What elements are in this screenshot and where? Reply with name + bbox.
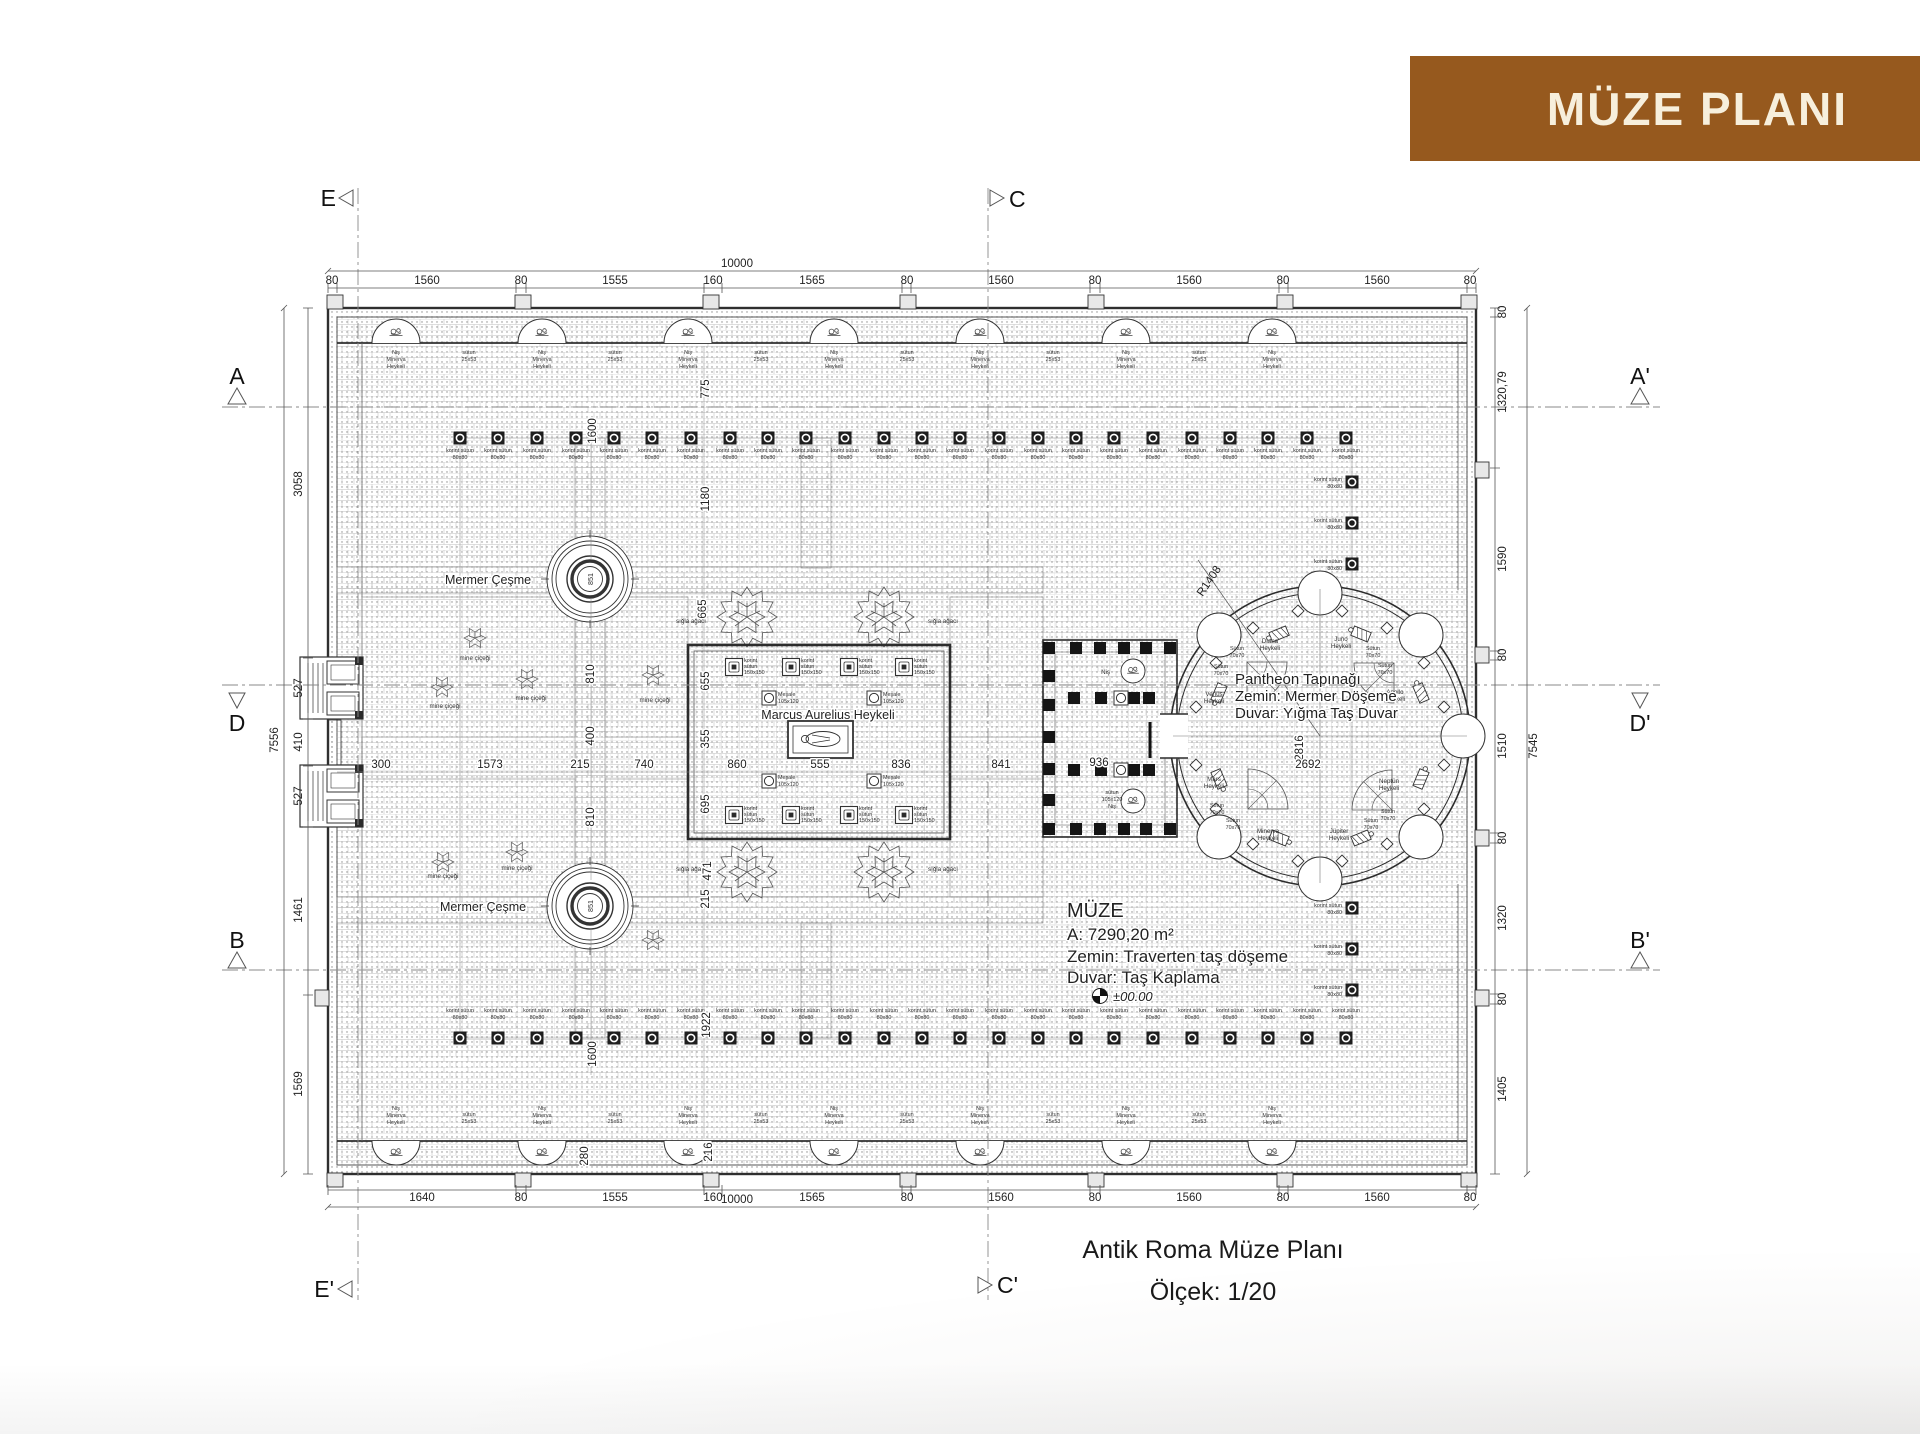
svg-text:1320: 1320 (1497, 905, 1509, 931)
svg-text:1555: 1555 (602, 1192, 628, 1204)
svg-text:215: 215 (570, 759, 589, 771)
svg-text:80: 80 (1497, 832, 1509, 845)
svg-text:80: 80 (1464, 275, 1477, 287)
svg-text:80x80: 80x80 (953, 455, 968, 461)
svg-text:Heykeli: Heykeli (1263, 364, 1281, 370)
svg-text:105x120: 105x120 (883, 782, 904, 788)
svg-text:105x120: 105x120 (778, 699, 799, 705)
korint-sutun-label: korint sütun (985, 448, 1013, 454)
sutun-25x53-label: sütun (608, 1112, 621, 1118)
korint-sutun-label: korint sütun (716, 1008, 744, 1014)
korint-sutun-label: korint sütun (600, 1008, 628, 1014)
svg-text:80x80: 80x80 (838, 1015, 853, 1021)
svg-text:665: 665 (697, 599, 709, 618)
svg-text:Minerva: Minerva (970, 1113, 989, 1119)
svg-text:Heykeli: Heykeli (1263, 1120, 1281, 1126)
svg-text:105x120: 105x120 (883, 699, 904, 705)
korint-sutun-label: korint sütun (1024, 448, 1052, 454)
statue-label: NeptünHeykeli (1379, 778, 1400, 792)
nis-minerva-label: Niş (684, 350, 692, 356)
svg-text:Minerva: Minerva (678, 357, 697, 363)
korint-sutun-label: korint sütun (562, 448, 590, 454)
svg-text:Zemin: Mermer Döşeme: Zemin: Mermer Döşeme (1235, 688, 1397, 705)
korint-sutun-label: korint sütun (1314, 985, 1342, 991)
mine-label: mine çiçeği (428, 873, 459, 880)
svg-text:300: 300 (371, 759, 390, 771)
svg-text:3058: 3058 (293, 471, 305, 497)
svg-text:Minerva: Minerva (532, 1113, 551, 1119)
svg-text:80: 80 (1277, 1192, 1290, 1204)
svg-text:80x80: 80x80 (838, 455, 853, 461)
svg-text:841: 841 (991, 759, 1010, 771)
svg-text:655: 655 (700, 671, 712, 690)
korint-sutun-label: korint sütun (446, 448, 474, 454)
svg-text:215: 215 (700, 889, 712, 908)
korint-sutun-label: korint sütun (1062, 1008, 1090, 1014)
svg-text:Minerva: Minerva (678, 1113, 697, 1119)
svg-text:80x80: 80x80 (1327, 525, 1342, 531)
svg-text:80x80: 80x80 (877, 455, 892, 461)
korint-sutun-label: korint sütun (523, 1008, 551, 1014)
sigla-label: sığla ağacı (928, 618, 958, 625)
svg-text:1590: 1590 (1497, 546, 1509, 572)
svg-text:Heykeli: Heykeli (1204, 783, 1224, 790)
svg-text:80: 80 (901, 1192, 914, 1204)
svg-text:150x150: 150x150 (801, 670, 822, 676)
svg-text:80: 80 (1497, 993, 1509, 1006)
svg-text:Heykeli: Heykeli (1331, 643, 1351, 650)
korint-sutun-label: korint sütun (870, 448, 898, 454)
sutun-25x53-label: sütun (1046, 1112, 1059, 1118)
svg-text:Juno: Juno (1334, 636, 1348, 643)
korint-sutun-label: korint sütun (908, 448, 936, 454)
svg-text:Minerva: Minerva (1262, 1113, 1281, 1119)
marker-C2: C' (997, 1272, 1018, 1298)
korint-sutun-label: korint sütun (484, 1008, 512, 1014)
sutun-25x53-label: sütun (1192, 1112, 1205, 1118)
marker-E2: E' (314, 1276, 334, 1302)
korint-sutun-label: korint sütun (870, 1008, 898, 1014)
svg-text:80x80: 80x80 (453, 1015, 468, 1021)
sutun-25x53-label: sütun (754, 1112, 767, 1118)
svg-text:80: 80 (1464, 1192, 1477, 1204)
marker-A2: A' (1630, 363, 1650, 389)
svg-text:1922: 1922 (701, 1012, 713, 1038)
korint-sutun-label: korint sütun (638, 1008, 666, 1014)
svg-text:80: 80 (1089, 1192, 1102, 1204)
svg-text:80x80: 80x80 (1223, 1015, 1238, 1021)
marcus-label: Marcus Aurelius Heykeli (761, 708, 894, 722)
svg-text:80x80: 80x80 (491, 1015, 506, 1021)
svg-text:Minerva: Minerva (1262, 357, 1281, 363)
svg-text:1573: 1573 (477, 759, 503, 771)
svg-text:216: 216 (703, 1142, 715, 1161)
svg-text:80: 80 (1497, 649, 1509, 662)
svg-text:70x70: 70x70 (1214, 671, 1229, 677)
svg-text:Heykeli: Heykeli (533, 1120, 551, 1126)
sutun-70-label: Sütun (1381, 809, 1395, 815)
svg-text:70x70: 70x70 (1230, 653, 1245, 659)
svg-text:80x80: 80x80 (1223, 455, 1238, 461)
svg-text:Mars: Mars (1207, 776, 1221, 783)
svg-text:80x80: 80x80 (684, 455, 699, 461)
svg-text:Minerva: Minerva (1116, 1113, 1135, 1119)
nis-minerva-label: Niş (976, 350, 984, 356)
svg-text:Minerva: Minerva (970, 357, 989, 363)
svg-text:25x53: 25x53 (462, 357, 477, 363)
svg-text:25x53: 25x53 (900, 357, 915, 363)
korint-sutun-label: korint sütun (985, 1008, 1013, 1014)
svg-text:555: 555 (810, 759, 829, 771)
svg-text:Duvar: Yığma Taş Duvar: Duvar: Yığma Taş Duvar (1235, 705, 1398, 722)
svg-text:80x80: 80x80 (1327, 566, 1342, 572)
marker-A: A (229, 363, 245, 389)
svg-text:Heykeli: Heykeli (533, 364, 551, 370)
sutun-25x53-label: sütun (462, 350, 475, 356)
svg-text:1560: 1560 (1364, 275, 1390, 287)
korint-sutun-label: korint sütun (1100, 1008, 1128, 1014)
korint-sutun-label: korint sütun (562, 1008, 590, 1014)
svg-text:80x80: 80x80 (1327, 992, 1342, 998)
statue-label: VenüsHeykeli (1204, 691, 1224, 705)
nis-minerva-label: Niş (830, 350, 838, 356)
svg-text:Minerva: Minerva (824, 357, 843, 363)
svg-text:1560: 1560 (988, 275, 1014, 287)
statue-label: DianaHeykeli (1260, 638, 1280, 652)
korint-sutun-label: korint sütun (716, 448, 744, 454)
svg-text:Heykeli: Heykeli (679, 1120, 697, 1126)
svg-text:80x80: 80x80 (1327, 951, 1342, 957)
svg-text:80x80: 80x80 (1185, 1015, 1200, 1021)
nis-minerva-label: Niş (538, 1106, 546, 1112)
sigla-label: sığla ağacı (928, 866, 958, 873)
svg-text:1560: 1560 (988, 1192, 1014, 1204)
sutun-25x53-label: sütun (754, 350, 767, 356)
nis-minerva-label: Niş (1268, 350, 1276, 356)
caption-title: Antik Roma Müze Planı (1082, 1236, 1343, 1264)
svg-text:80x80: 80x80 (799, 455, 814, 461)
svg-text:70x70: 70x70 (1381, 816, 1396, 822)
korint-sutun-label: korint sütun (1178, 1008, 1206, 1014)
svg-text:150x150: 150x150 (914, 818, 935, 824)
svg-text:Heykeli: Heykeli (971, 364, 989, 370)
svg-text:105x120: 105x120 (778, 782, 799, 788)
korint-sutun-label: korint sütun (1216, 1008, 1244, 1014)
korint-sutun-label: korint sütun (677, 448, 705, 454)
svg-text:1461: 1461 (293, 897, 305, 923)
svg-text:Diana: Diana (1262, 638, 1279, 645)
marker-C: C (1009, 186, 1026, 212)
nis-minerva-label: Niş (392, 350, 400, 356)
marker-D2: D' (1629, 710, 1650, 736)
svg-text:80x80: 80x80 (953, 1015, 968, 1021)
svg-text:471: 471 (702, 861, 714, 880)
level-value: ±00.00 (1113, 989, 1153, 1004)
svg-text:80x80: 80x80 (1261, 455, 1276, 461)
svg-text:70x70: 70x70 (1366, 653, 1381, 659)
svg-text:80x80: 80x80 (1031, 455, 1046, 461)
svg-text:1640: 1640 (409, 1192, 435, 1204)
sutun-70-label: Sütun (1210, 803, 1224, 809)
svg-text:70x70: 70x70 (1210, 810, 1225, 816)
svg-text:80x80: 80x80 (1031, 1015, 1046, 1021)
svg-text:Heykeli: Heykeli (825, 1120, 843, 1126)
svg-text:80x80: 80x80 (799, 1015, 814, 1021)
svg-text:80x80: 80x80 (877, 1015, 892, 1021)
svg-text:150x150: 150x150 (914, 670, 935, 676)
svg-text:355: 355 (700, 729, 712, 748)
dim-2692: 2692 (1295, 759, 1321, 771)
statue-label: MinervaHeykeli (1257, 828, 1280, 842)
svg-text:Neptün: Neptün (1379, 778, 1400, 785)
svg-text:25x53: 25x53 (754, 357, 769, 363)
svg-text:Heykeli: Heykeli (971, 1120, 989, 1126)
svg-text:Heykeli: Heykeli (1260, 645, 1280, 652)
svg-text:Minerva: Minerva (1116, 357, 1135, 363)
sutun-25x53-label: sütun (1046, 350, 1059, 356)
svg-text:80x80: 80x80 (723, 1015, 738, 1021)
svg-text:527: 527 (293, 678, 305, 697)
svg-text:25x53: 25x53 (1046, 1119, 1061, 1125)
svg-text:1510: 1510 (1497, 733, 1509, 759)
svg-text:80x80: 80x80 (915, 455, 930, 461)
svg-text:80x80: 80x80 (992, 455, 1007, 461)
svg-text:80x80: 80x80 (723, 455, 738, 461)
svg-text:Heykeli: Heykeli (1258, 835, 1278, 842)
svg-text:25x53: 25x53 (462, 1119, 477, 1125)
sutun-25x53-label: sütun (608, 350, 621, 356)
muze-name: MÜZE (1067, 900, 1124, 922)
svg-text:150x150: 150x150 (744, 818, 765, 824)
svg-text:150x150: 150x150 (801, 818, 822, 824)
nis-minerva-label: Niş (830, 1106, 838, 1112)
svg-text:Minerva: Minerva (386, 1113, 405, 1119)
sutun-25x53-label: sütun (900, 1112, 913, 1118)
svg-text:80x80: 80x80 (530, 455, 545, 461)
svg-text:150x150: 150x150 (859, 818, 880, 824)
svg-text:1600: 1600 (587, 1041, 599, 1067)
svg-text:80x80: 80x80 (1107, 1015, 1122, 1021)
svg-text:25x53: 25x53 (1192, 1119, 1207, 1125)
svg-text:860: 860 (727, 759, 746, 771)
svg-text:80x80: 80x80 (607, 455, 622, 461)
svg-text:25x53: 25x53 (1046, 357, 1061, 363)
pantheon-portico: Niş sütun 105x120 Niş (1043, 640, 1177, 837)
korint-sutun-label: korint sütun (1178, 448, 1206, 454)
svg-text:25x53: 25x53 (754, 1119, 769, 1125)
svg-text:70x70: 70x70 (1378, 670, 1393, 676)
svg-text:25x53: 25x53 (1192, 357, 1207, 363)
sutun-25x53-label: sütun (462, 1112, 475, 1118)
nis-minerva-label: Niş (976, 1106, 984, 1112)
svg-text:Heykeli: Heykeli (1117, 1120, 1135, 1126)
svg-text:Heykeli: Heykeli (1379, 785, 1399, 792)
svg-text:70x70: 70x70 (1364, 825, 1379, 831)
korint-sutun-label: korint sütun (1314, 477, 1342, 483)
muze-area: A: 7290,20 m² (1067, 925, 1174, 944)
caption-scale: Ölçek: 1/20 (1150, 1278, 1276, 1306)
svg-text:80: 80 (515, 1192, 528, 1204)
dim-right-total: 7545 (1528, 733, 1540, 759)
statue-plinth (788, 721, 853, 758)
mesale-label: Meşale (883, 775, 900, 781)
mine-label: mine çiçeği (502, 865, 533, 872)
korint-sutun-label: korint sütun (946, 448, 974, 454)
svg-text:80x80: 80x80 (645, 1015, 660, 1021)
svg-text:Heykeli: Heykeli (1117, 364, 1135, 370)
marker-E: E (321, 185, 336, 211)
svg-text:Minerva: Minerva (1257, 828, 1280, 835)
svg-text:836: 836 (891, 759, 910, 771)
svg-text:Heykeli: Heykeli (387, 1120, 405, 1126)
korint-sutun-label: korint sütun (1139, 448, 1167, 454)
korint-sutun-label: korint sütun (908, 1008, 936, 1014)
fountain-dim: 851 (586, 573, 595, 585)
svg-text:25x53: 25x53 (608, 357, 623, 363)
svg-text:1405: 1405 (1497, 1076, 1509, 1102)
statue-label: JüpiterHeykeli (1329, 828, 1349, 842)
korint-sutun-label: korint sütun (754, 448, 782, 454)
svg-text:1180: 1180 (700, 487, 712, 512)
svg-text:80x80: 80x80 (607, 1015, 622, 1021)
sutun-70-label: Sütun (1214, 664, 1228, 670)
svg-text:810: 810 (585, 807, 597, 826)
korint-sutun-label: korint sütun (1332, 448, 1360, 454)
korint-sutun-label: korint sütun (1216, 448, 1244, 454)
svg-text:280: 280 (579, 1146, 591, 1165)
svg-text:80x80: 80x80 (645, 455, 660, 461)
svg-text:80x80: 80x80 (1185, 455, 1200, 461)
svg-text:80x80: 80x80 (1327, 910, 1342, 916)
svg-text:80x80: 80x80 (915, 1015, 930, 1021)
mesale-label: Meşale (778, 692, 795, 698)
korint-sutun-label: korint sütun (831, 1008, 859, 1014)
caption: Antik Roma Müze Planı Ölçek: 1/20 (1082, 1236, 1343, 1306)
sutun-70-label: Sütun (1230, 646, 1244, 652)
page: MÜZE PLANI (0, 0, 1920, 1434)
sutun-70-label: Sütun (1364, 818, 1378, 824)
svg-text:80: 80 (901, 275, 914, 287)
sutun-70-label: Sütun (1366, 646, 1380, 652)
korint-sutun-label: korint sütun (1024, 1008, 1052, 1014)
svg-text:80x80: 80x80 (1107, 455, 1122, 461)
korint-sutun-label: korint sütun (1314, 944, 1342, 950)
svg-text:70x70: 70x70 (1226, 825, 1241, 831)
svg-text:Niş: Niş (1108, 804, 1116, 810)
nis-minerva-label: Niş (1122, 1106, 1130, 1112)
mine-label: mine çiçeği (640, 697, 671, 704)
svg-text:Minerva: Minerva (386, 357, 405, 363)
marker-B2: B' (1630, 927, 1650, 953)
svg-text:80: 80 (326, 275, 339, 287)
korint-sutun-label: korint sütun (523, 448, 551, 454)
korint-sutun-label: korint sütun (1293, 1008, 1321, 1014)
svg-text:1555: 1555 (602, 275, 628, 287)
svg-text:80x80: 80x80 (1300, 1015, 1315, 1021)
svg-text:150x150: 150x150 (744, 670, 765, 676)
sutun-25x53-label: sütun (1192, 350, 1205, 356)
svg-text:80: 80 (515, 275, 528, 287)
svg-text:1560: 1560 (1364, 1192, 1390, 1204)
nis-minerva-label: Niş (392, 1106, 400, 1112)
svg-text:410: 410 (293, 732, 305, 751)
marker-B: B (229, 927, 244, 953)
korint-sutun-label: korint sütun (1100, 448, 1128, 454)
korint-sutun-label: korint sütun (638, 448, 666, 454)
sutun-25x53-label: sütun (900, 350, 913, 356)
mine-label: mine çiçeği (430, 703, 461, 710)
fountain-dim: 851 (586, 900, 595, 912)
korint-sutun-label: korint sütun (1293, 448, 1321, 454)
korint-sutun-label: korint sütun (1314, 559, 1342, 565)
svg-text:80x80: 80x80 (1327, 484, 1342, 490)
korint-sutun-label: korint sütun (600, 448, 628, 454)
mermer-cesme-label: Mermer Çeşme (440, 900, 526, 914)
mermer-cesme-label: Mermer Çeşme (445, 573, 531, 587)
svg-text:695: 695 (700, 794, 712, 813)
svg-text:80x80: 80x80 (530, 1015, 545, 1021)
korint-sutun-label: korint sütun (792, 1008, 820, 1014)
svg-text:80x80: 80x80 (1339, 455, 1354, 461)
dim-2816: 2816 (1294, 735, 1306, 761)
wall-pier (328, 720, 341, 765)
svg-text:400: 400 (585, 726, 597, 745)
svg-text:810: 810 (585, 664, 597, 683)
mesale-label: Meşale (883, 692, 900, 698)
svg-text:80x80: 80x80 (1069, 1015, 1084, 1021)
korint-sutun-label: korint sütun (831, 448, 859, 454)
svg-text:Jüpiter: Jüpiter (1330, 828, 1349, 835)
svg-text:105x120: 105x120 (1102, 797, 1123, 803)
korint-sutun-label: korint sütun (1332, 1008, 1360, 1014)
svg-text:80x80: 80x80 (569, 455, 584, 461)
korint-sutun-label: korint sütun (1139, 1008, 1167, 1014)
svg-text:80x80: 80x80 (1261, 1015, 1276, 1021)
svg-text:1320,79: 1320,79 (1497, 371, 1509, 413)
svg-text:1560: 1560 (1176, 275, 1202, 287)
svg-text:740: 740 (634, 759, 653, 771)
korint-sutun-label: korint sütun (946, 1008, 974, 1014)
korint-sutun-label: korint sütun (1254, 448, 1282, 454)
svg-text:80x80: 80x80 (761, 455, 776, 461)
svg-text:80x80: 80x80 (491, 455, 506, 461)
svg-text:Minerva: Minerva (532, 357, 551, 363)
svg-text:80x80: 80x80 (453, 455, 468, 461)
muze-wall: Duvar: Taş Kaplama (1067, 968, 1220, 987)
korint-sutun-label: korint sütun (446, 1008, 474, 1014)
dim-overall-bottom: 10000 (721, 1194, 753, 1206)
svg-text:160: 160 (703, 1192, 722, 1204)
svg-text:Heykeli: Heykeli (1204, 698, 1224, 705)
svg-text:80x80: 80x80 (1339, 1015, 1354, 1021)
muze-floor: Zemin: Traverten taş döşeme (1067, 947, 1288, 966)
svg-text:80x80: 80x80 (684, 1015, 699, 1021)
svg-text:80: 80 (1497, 306, 1509, 319)
korint-sutun-label: korint sütun (792, 448, 820, 454)
svg-text:80: 80 (1089, 275, 1102, 287)
svg-text:Heykeli: Heykeli (679, 364, 697, 370)
korint-sutun-label: korint sütun (754, 1008, 782, 1014)
svg-text:775: 775 (700, 379, 712, 398)
svg-text:527: 527 (293, 786, 305, 805)
svg-text:80x80: 80x80 (1146, 455, 1161, 461)
svg-text:Minerva: Minerva (824, 1113, 843, 1119)
svg-text:Heykeli: Heykeli (1329, 835, 1349, 842)
svg-text:25x53: 25x53 (900, 1119, 915, 1125)
monument: korint sütun 150x150 korint sütun 150x15… (688, 645, 950, 839)
svg-text:1565: 1565 (799, 1192, 825, 1204)
svg-text:80x80: 80x80 (569, 1015, 584, 1021)
